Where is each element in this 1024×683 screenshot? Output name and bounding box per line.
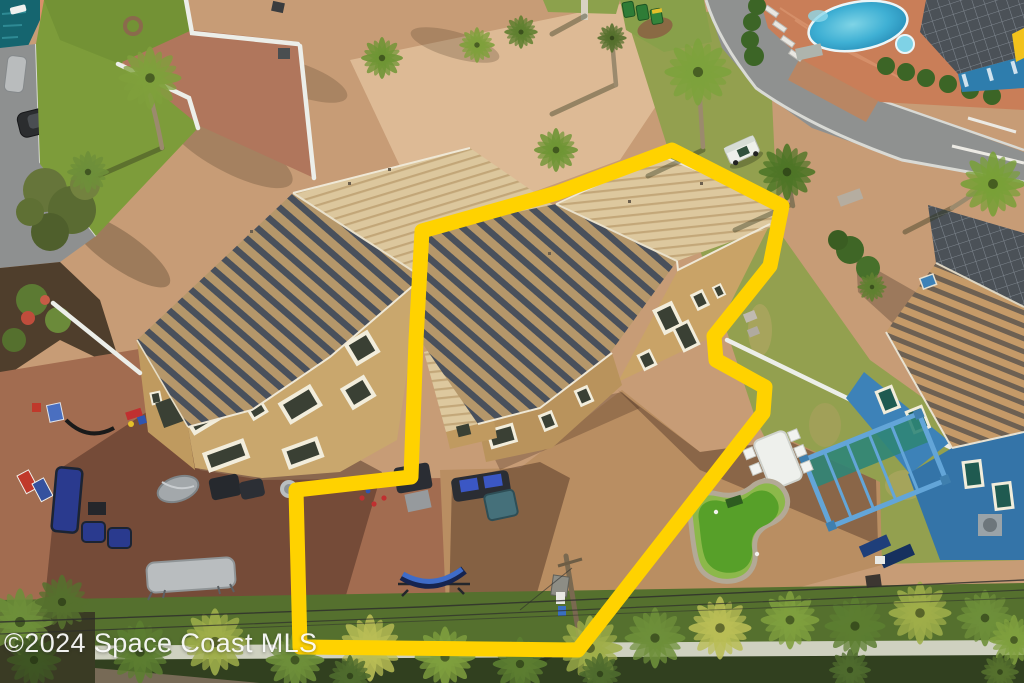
flower-bush xyxy=(21,311,35,325)
hot-tub xyxy=(484,489,519,521)
aerial-photo-canvas xyxy=(0,0,1024,683)
spa xyxy=(896,35,914,53)
pole-sign xyxy=(556,592,565,604)
aerial-photo: ©2024 Space Coast MLS xyxy=(0,0,1024,683)
